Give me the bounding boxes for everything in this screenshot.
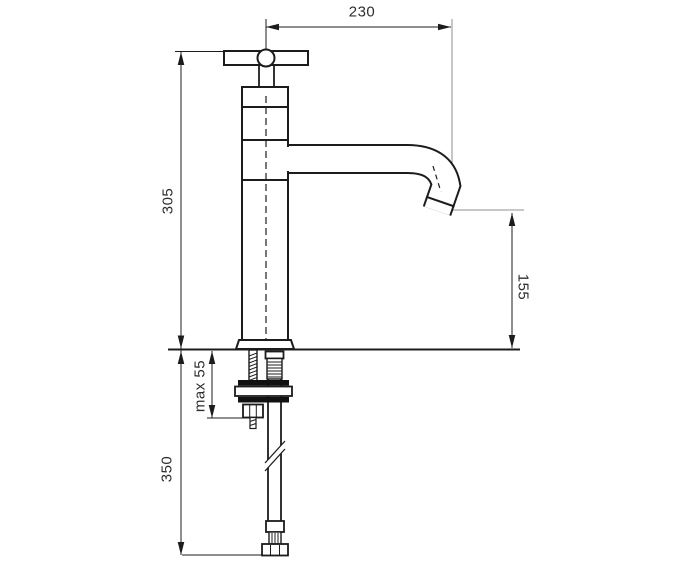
base-flange [236, 340, 294, 349]
dimension-lines [181, 27, 512, 555]
hose-end-nut [262, 544, 288, 556]
arrow-230-right [438, 24, 451, 30]
arrow-305-bottom [178, 336, 185, 349]
dim-spout-outlet-height-label: 155 [516, 274, 531, 301]
hose-end-collar [266, 521, 284, 532]
faucet-body [236, 87, 294, 349]
faucet-spout [287, 159, 455, 211]
arrow-230-left [266, 24, 279, 30]
dim-hose-length-label: 350 [160, 456, 175, 483]
rubber-gasket-top [238, 380, 289, 386]
arrow-155-bottom [509, 335, 516, 348]
arrow-max55-top [209, 351, 216, 364]
faucet-technical-drawing: 230 305 155 max 55 350 [0, 0, 693, 567]
dim-spout-reach-label: 230 [349, 5, 376, 20]
dim-total-height-label: 305 [161, 188, 176, 215]
fixing-nut [243, 405, 263, 429]
cross-handle [224, 50, 308, 88]
rod-stub [250, 418, 256, 429]
handle-hub-circle [258, 50, 275, 67]
rubber-gasket-bottom [238, 397, 289, 403]
arrow-350-bottom [178, 542, 185, 555]
body-column [242, 87, 288, 341]
hose-end-fitting [262, 521, 288, 556]
arrow-155-top [509, 213, 516, 226]
metal-washer [235, 387, 292, 397]
dim-max-deck-thickness-label: max 55 [193, 360, 208, 412]
dimension-arrowheads [178, 24, 516, 555]
arrow-305-top [178, 52, 185, 65]
arrow-350-top [178, 351, 185, 364]
arrow-max55-bottom [209, 405, 216, 418]
extension-lines [175, 19, 524, 555]
supply-hose [265, 352, 285, 523]
mounting-washers [235, 380, 292, 403]
threaded-rod [249, 350, 257, 381]
drawing-canvas [0, 0, 693, 567]
